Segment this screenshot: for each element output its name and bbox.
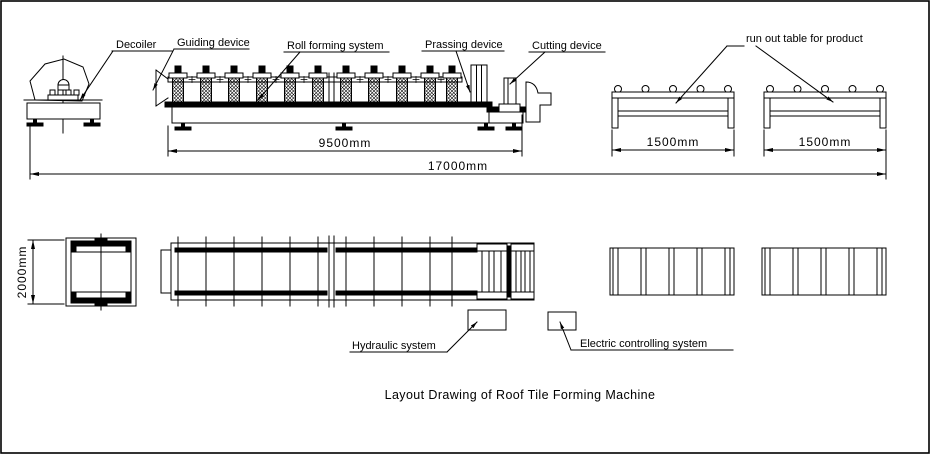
decoiler-label: Decoiler: [116, 39, 157, 51]
machine-base: [172, 107, 490, 123]
step-platform: [489, 112, 523, 123]
pressing-device-shape: [471, 65, 487, 102]
drawing-border: [1, 1, 929, 453]
run-out-table-2-plan: [762, 248, 886, 295]
dim-2000-text: 2000mm: [15, 246, 29, 299]
run-out-table-1-plan: [610, 248, 734, 295]
dim-9500-text: 9500mm: [319, 136, 372, 150]
hydraulic-system-box: [468, 310, 506, 330]
machine-bed: [165, 102, 492, 107]
dim-1500b-text: 1500mm: [799, 135, 852, 149]
drawing-svg: Decoiler Guiding device: [0, 0, 930, 454]
decoiler-base: [27, 103, 100, 119]
dim-1500a-text: 1500mm: [647, 135, 700, 149]
run-out-table-label: run out table for product: [746, 33, 863, 45]
roll-forming-label: Roll forming system: [287, 40, 384, 52]
electric-system-label: Electric controlling system: [580, 338, 707, 350]
hydraulic-system-label: Hydraulic system: [352, 340, 436, 352]
pressing-device-label: Prassing device: [425, 39, 503, 51]
roll-forming-machine-plan: [161, 236, 534, 307]
dim-17000-text: 17000mm: [428, 159, 488, 173]
layout-drawing-canvas: Decoiler Guiding device: [0, 0, 930, 454]
guiding-device-label: Guiding device: [177, 37, 250, 49]
decoiler-plan-view: [66, 234, 136, 310]
drawing-title: Layout Drawing of Roof Tile Forming Mach…: [385, 388, 656, 402]
cutting-device-label: Cutting device: [532, 40, 602, 52]
